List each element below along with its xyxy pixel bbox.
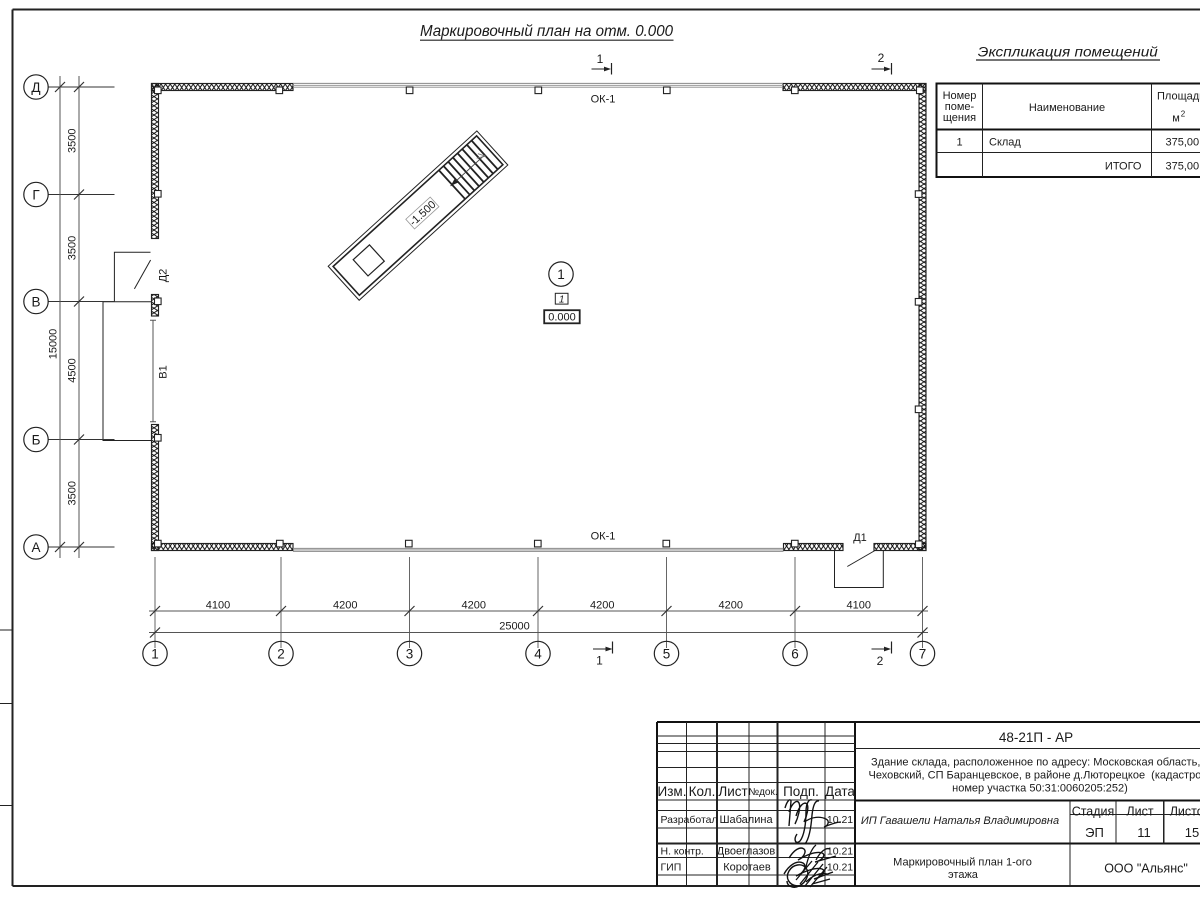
svg-text:Шабалина: Шабалина xyxy=(719,814,773,826)
svg-text:Н. контр.: Н. контр. xyxy=(661,846,704,858)
svg-text:10.21: 10.21 xyxy=(827,862,853,874)
svg-text:1: 1 xyxy=(596,654,603,668)
svg-text:Экспликация помещений: Экспликация помещений xyxy=(978,45,1159,60)
svg-text:1: 1 xyxy=(557,267,565,282)
svg-text:1: 1 xyxy=(559,294,565,305)
svg-text:375,00: 375,00 xyxy=(1166,137,1200,149)
svg-text:Дата: Дата xyxy=(825,784,855,799)
svg-text:11: 11 xyxy=(1137,825,1151,840)
svg-text:Номер: Номер xyxy=(943,90,977,102)
svg-text:3500: 3500 xyxy=(67,236,79,260)
svg-text:1: 1 xyxy=(956,137,962,149)
svg-text:м: м xyxy=(1172,113,1180,125)
svg-text:Двоеглазов: Двоеглазов xyxy=(717,846,776,858)
svg-text:ГИП: ГИП xyxy=(661,862,682,874)
svg-text:375,00: 375,00 xyxy=(1166,160,1200,172)
svg-text:5: 5 xyxy=(663,646,671,661)
svg-text:3500: 3500 xyxy=(67,481,79,505)
svg-text:этажа: этажа xyxy=(948,869,979,881)
svg-text:1: 1 xyxy=(151,646,159,661)
svg-text:Чеховский, СП Баранцевское, в: Чеховский, СП Баранцевское, в районе д.Л… xyxy=(869,770,1200,782)
svg-text:Д: Д xyxy=(31,80,40,95)
svg-text:7: 7 xyxy=(919,646,927,661)
svg-text:Кол.: Кол. xyxy=(689,784,716,799)
svg-text:Коротаев: Коротаев xyxy=(723,862,771,874)
svg-text:4200: 4200 xyxy=(590,599,614,611)
svg-text:щения: щения xyxy=(943,112,976,124)
svg-text:2: 2 xyxy=(878,51,885,65)
svg-text:Изм.: Изм. xyxy=(658,784,687,799)
svg-text:2: 2 xyxy=(277,646,285,661)
svg-text:4100: 4100 xyxy=(206,599,230,611)
svg-text:Площадь: Площадь xyxy=(1157,90,1200,102)
svg-text:Наименование: Наименование xyxy=(1029,102,1105,114)
svg-text:15000: 15000 xyxy=(48,329,60,360)
svg-text:Склад: Склад xyxy=(989,137,1021,149)
svg-text:В1: В1 xyxy=(158,365,170,378)
svg-text:2: 2 xyxy=(1181,110,1186,119)
svg-text:А: А xyxy=(31,540,40,555)
svg-text:Маркировочный план 1-ого: Маркировочный план 1-ого xyxy=(893,857,1032,869)
svg-text:25000: 25000 xyxy=(499,620,530,632)
svg-text:ЭП: ЭП xyxy=(1085,825,1104,840)
svg-text:Лист: Лист xyxy=(718,784,747,799)
svg-text:4200: 4200 xyxy=(333,599,357,611)
svg-text:Б: Б xyxy=(32,432,41,447)
svg-text:Подп.: Подп. xyxy=(783,784,819,799)
svg-text:10.21: 10.21 xyxy=(827,846,853,858)
svg-text:15: 15 xyxy=(1185,825,1199,840)
svg-text:Стадия: Стадия xyxy=(1072,804,1115,818)
svg-text:ООО "Альянс": ООО "Альянс" xyxy=(1104,862,1188,876)
svg-text:Здание склада, расположенное п: Здание склада, расположенное по адресу: … xyxy=(871,756,1200,768)
svg-text:4500: 4500 xyxy=(67,358,79,382)
svg-text:Д1: Д1 xyxy=(853,532,867,544)
svg-text:Лист: Лист xyxy=(1126,804,1153,818)
svg-text:Д2: Д2 xyxy=(158,269,170,283)
svg-text:ОК-1: ОК-1 xyxy=(591,93,616,105)
svg-text:Листов: Листов xyxy=(1170,804,1200,818)
svg-text:1: 1 xyxy=(597,52,604,66)
svg-text:Разработал: Разработал xyxy=(661,814,718,826)
svg-text:Г: Г xyxy=(32,187,40,202)
svg-text:4: 4 xyxy=(534,646,542,661)
svg-text:2: 2 xyxy=(877,654,884,668)
svg-text:Маркировочный план на отм. 0.0: Маркировочный план на отм. 0.000 xyxy=(420,23,673,40)
svg-text:3: 3 xyxy=(406,646,414,661)
svg-text:3500: 3500 xyxy=(67,129,79,153)
svg-text:номер участка 50:31:0060205:25: номер участка 50:31:0060205:252) xyxy=(952,783,1128,795)
svg-text:В: В xyxy=(31,294,40,309)
svg-text:0.000: 0.000 xyxy=(548,312,576,324)
svg-text:4200: 4200 xyxy=(462,599,486,611)
svg-text:ОК-1: ОК-1 xyxy=(591,530,616,542)
svg-text:48-21П - АР: 48-21П - АР xyxy=(999,730,1073,745)
svg-text:№док.: №док. xyxy=(748,787,777,798)
svg-text:4200: 4200 xyxy=(719,599,743,611)
svg-text:6: 6 xyxy=(791,646,799,661)
svg-text:ИТОГО: ИТОГО xyxy=(1105,160,1142,172)
svg-text:4100: 4100 xyxy=(847,599,871,611)
svg-text:ИП Гавашели Наталья Владимиров: ИП Гавашели Наталья Владимировна xyxy=(861,815,1059,827)
